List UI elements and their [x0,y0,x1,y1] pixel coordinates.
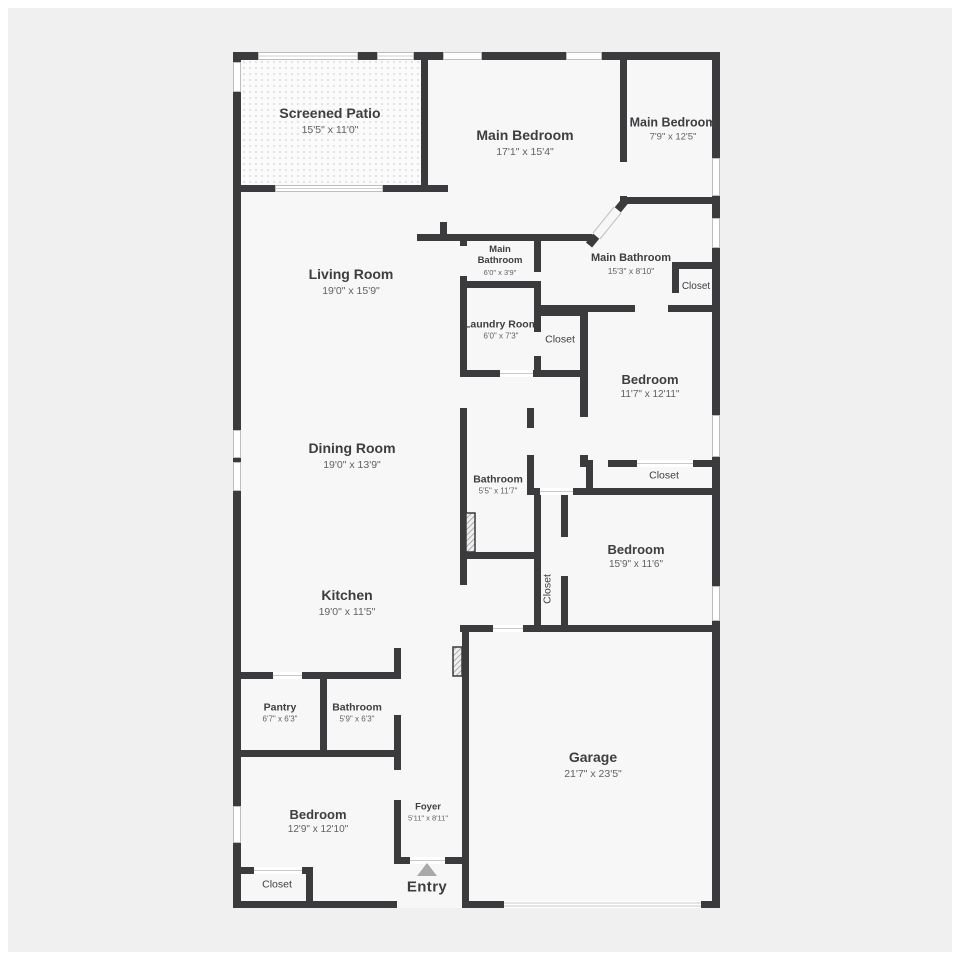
room-label-main-bedroom: Main Bedroom 17'1" x 15'4" [476,127,573,159]
room-label-bathroom-mid: Bathroom 5'5" x 11'7" [473,473,523,496]
windows-group [234,53,720,843]
room-label-bedroom-sw: Bedroom 12'9" x 12'10" [288,807,348,837]
entry-arrow-icon [417,863,437,876]
room-label-main-bedroom-2: Main Bedroom 7'9" x 12'5" [627,114,719,143]
room-label-bedroom-ne: Bedroom 11'7" x 12'11" [621,372,680,402]
room-label-kitchen: Kitchen 19'0" x 11'5" [319,587,376,619]
room-label-screened-patio: Screened Patio 15'5" x 11'0" [279,105,380,137]
room-label-foyer: Foyer 5'11" x 8'11" [408,801,448,822]
entry-label: Entry [407,879,447,898]
diagonal-door [589,201,625,245]
room-label-laundry: Laundry Room 6'0" x 7'3" [464,318,538,341]
room-label-main-bathroom-small: Main Bathroom 6'0" x 3'9" [470,245,530,277]
room-label-bathroom-sw: Bathroom 5'9" x 6'3" [332,701,382,724]
room-label-main-bathroom: Main Bathroom 15'3" x 8'10" [591,252,671,276]
room-label-living-room: Living Room 19'0" x 15'9" [309,266,394,298]
closet-label-bedroom-sw: Closet [262,878,292,891]
closet-label-bedroom-e: Closet [541,574,554,604]
closet-label-bedroom-ne: Closet [649,469,679,482]
room-label-pantry: Pantry 6'7" x 6'3" [263,701,298,724]
closet-label-laundry: Closet [545,333,575,346]
room-label-dining-room: Dining Room 19'0" x 13'9" [308,440,395,472]
room-label-garage: Garage 21'7" x 23'5" [564,749,622,781]
room-label-bedroom-e: Bedroom 15'9" x 11'6" [607,542,664,572]
closet-label-main-bath: Closet [682,281,710,294]
floorplan-stage: Screened Patio 15'5" x 11'0" Main Bedroo… [0,0,960,960]
